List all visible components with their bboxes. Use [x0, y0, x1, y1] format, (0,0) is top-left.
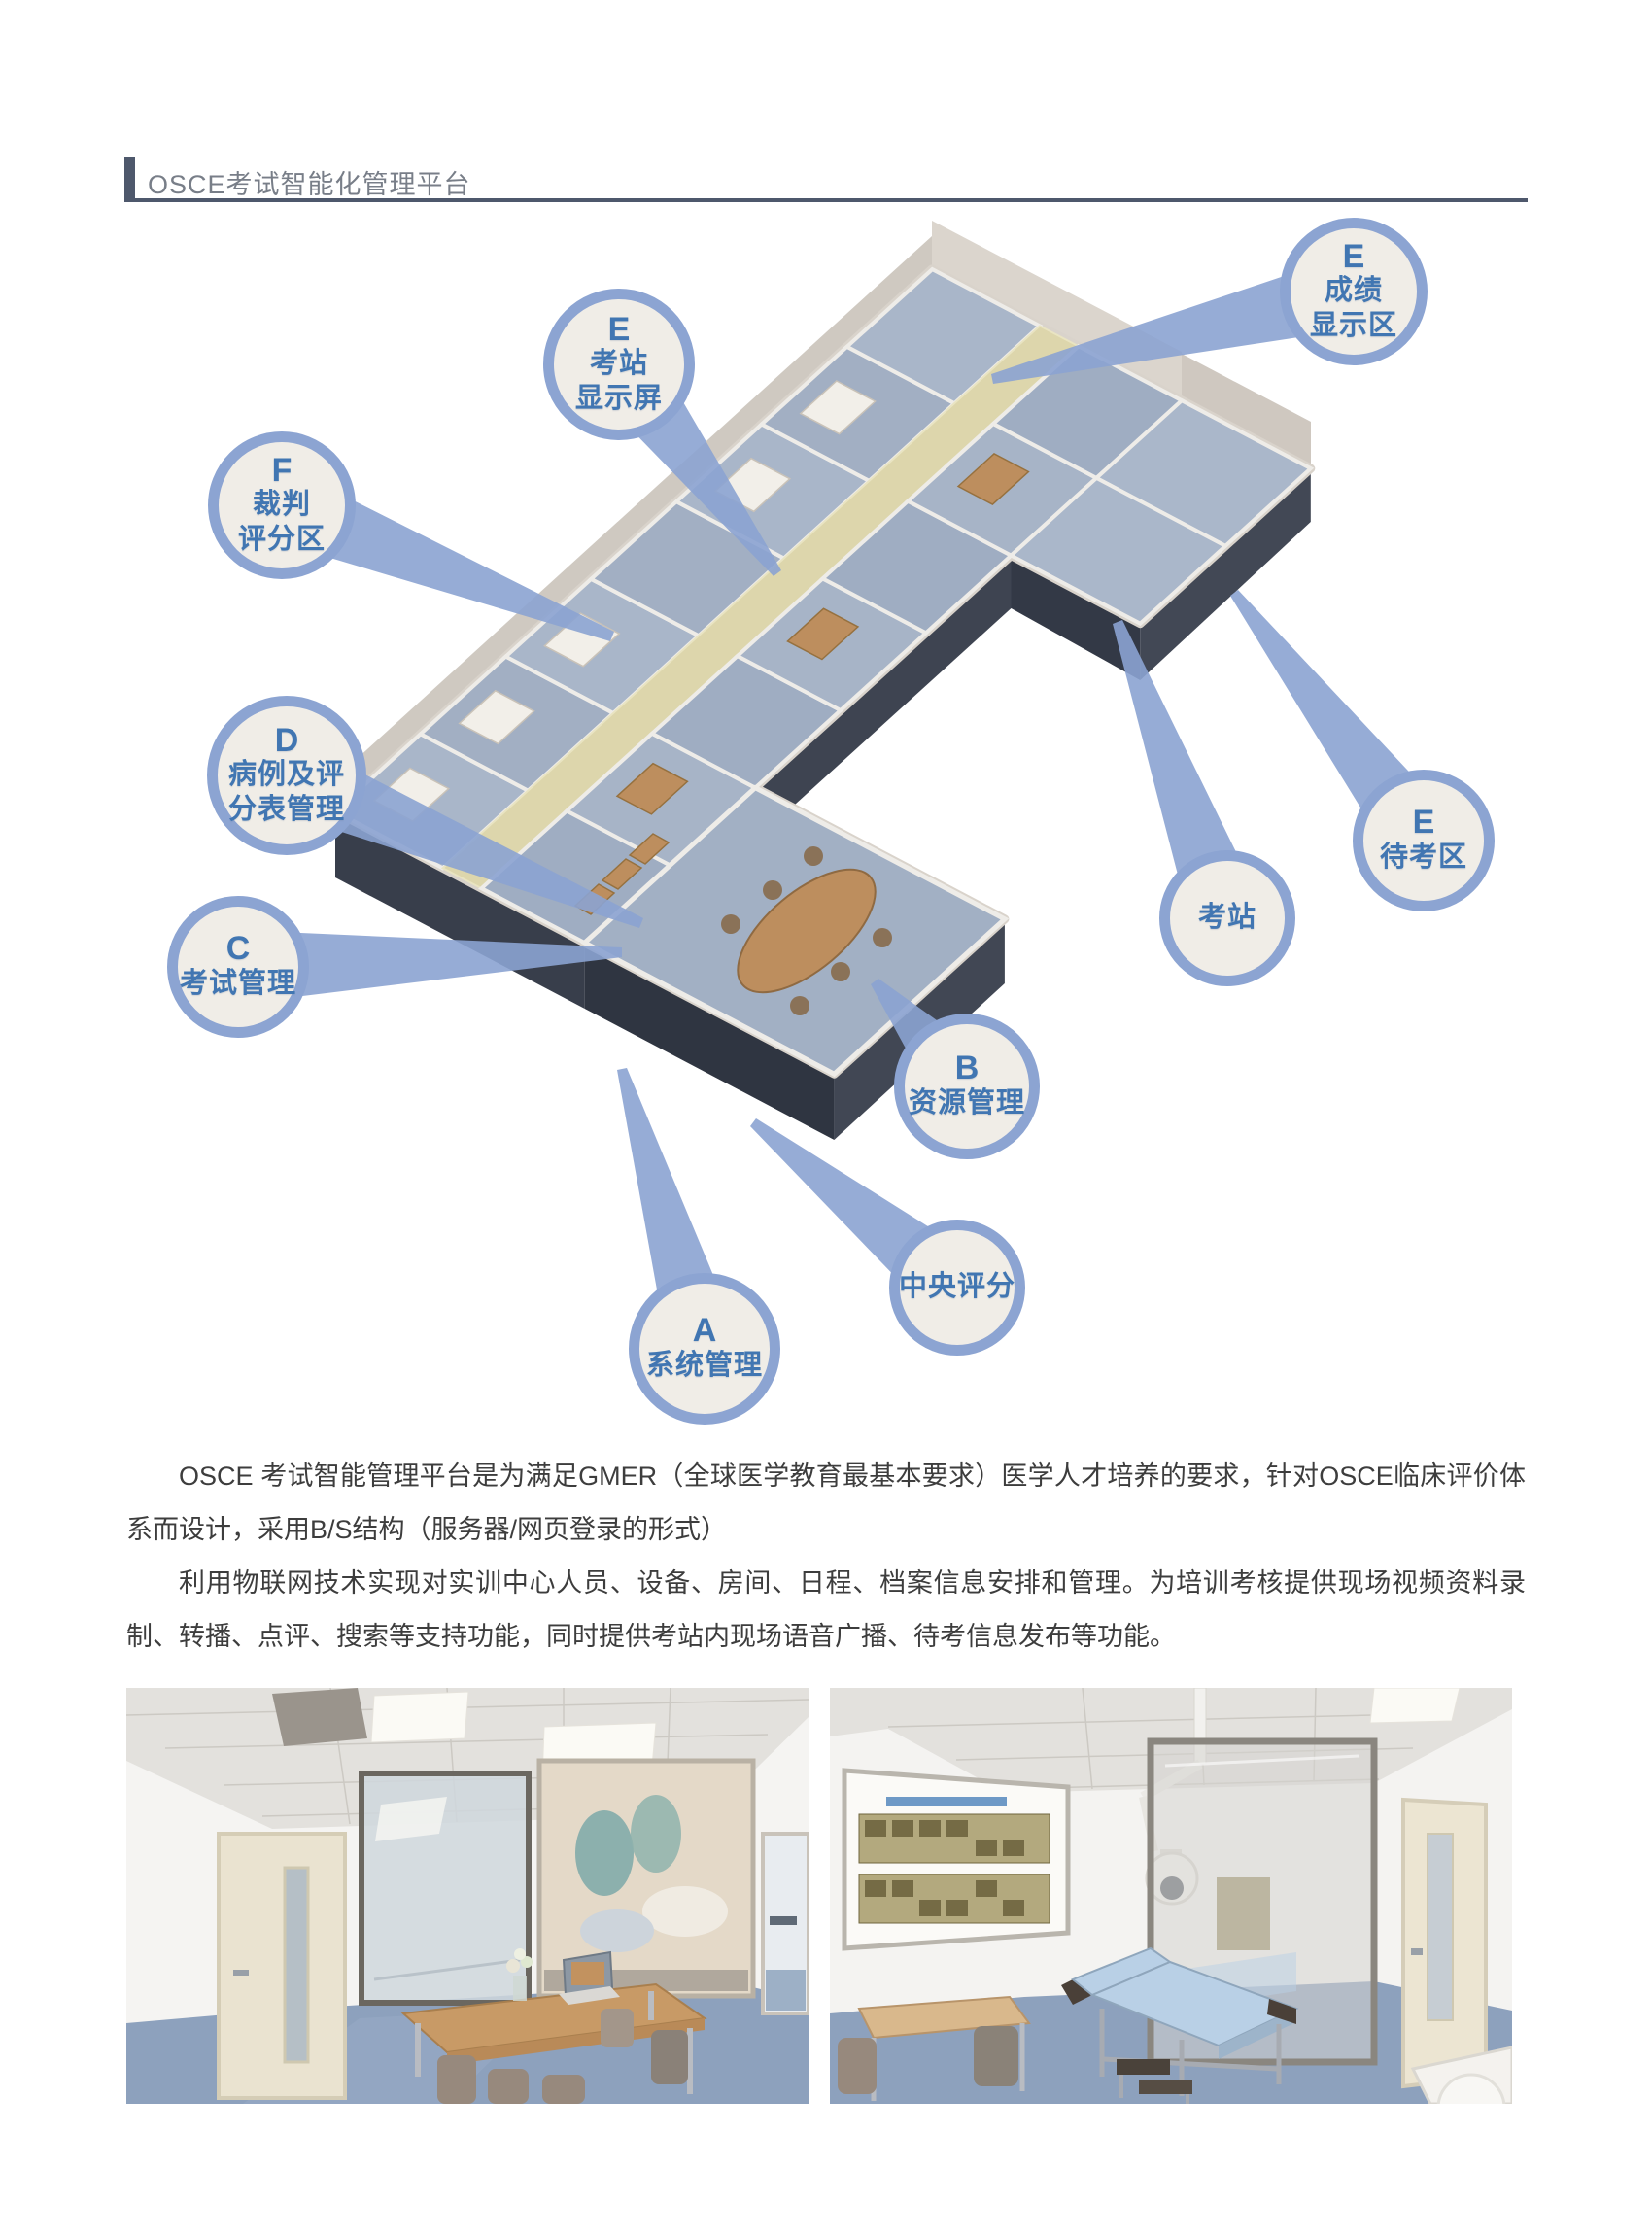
callout-label-line: 考站	[1198, 901, 1256, 935]
door-handle	[1411, 1948, 1423, 1955]
callout-letter: B	[955, 1051, 980, 1086]
callout-label-line: 显示区	[1310, 309, 1397, 343]
light-panel	[371, 1692, 468, 1742]
light-panel	[1370, 1688, 1460, 1723]
callout-e-waiting-area: E 待考区	[1353, 770, 1495, 911]
intro-paragraph-1: OSCE 考试智能管理平台是为满足GMER（全球医学教育最基本要求）医学人才培养…	[126, 1450, 1526, 1557]
callout-label-line: 病例及评	[228, 758, 345, 792]
callout-exam-station: 考站	[1159, 850, 1295, 986]
callout-letter: F	[272, 454, 293, 489]
callout-a-system-mgmt: A 系统管理	[629, 1273, 780, 1425]
callout-label-line: 考站	[590, 347, 648, 381]
glass-partition	[361, 1773, 529, 2003]
brochure-page: OSCE考试智能化管理平台	[0, 0, 1652, 2235]
callout-label-line: 中央评分	[899, 1270, 1015, 1304]
building	[335, 221, 1311, 1140]
callout-label-line: 系统管理	[646, 1349, 763, 1383]
callout-letter: E	[608, 313, 631, 348]
callout-label-line: 显示屏	[575, 382, 663, 416]
callout-letter: C	[226, 932, 251, 967]
callout-letter: E	[1343, 240, 1365, 275]
callout-label-line: 评分区	[238, 523, 326, 557]
door	[1403, 1800, 1486, 2086]
poster-title	[886, 1797, 1007, 1806]
door-handle	[233, 1970, 249, 1976]
callout-central-scoring: 中央评分	[889, 1220, 1025, 1356]
callout-label-line: 成绩	[1325, 274, 1383, 308]
callout-letter: D	[275, 724, 299, 759]
callout-e-score-display: E 成绩 显示区	[1280, 218, 1428, 365]
photo-exam-station-room	[830, 1688, 1512, 2104]
callout-label-line: 裁判	[253, 488, 311, 522]
laptop	[559, 1952, 620, 2005]
intro-paragraph-2: 利用物联网技术实现对实训中心人员、设备、房间、日程、档案信息安排和管理。为培训考…	[126, 1557, 1526, 1664]
photo-review-room	[126, 1688, 809, 2104]
callout-d-case-score-mgmt: D 病例及评 分表管理	[207, 696, 366, 855]
floorplan-poster	[844, 1771, 1068, 1948]
ceiling-speaker	[272, 1688, 367, 1746]
callout-b-resource-mgmt: B 资源管理	[894, 1014, 1040, 1159]
laptop-through-window	[770, 1916, 797, 1925]
callout-label-line: 考试管理	[180, 967, 296, 1001]
chair	[838, 2038, 877, 2094]
callout-letter: A	[693, 1314, 717, 1349]
callout-label-line: 分表管理	[228, 793, 345, 827]
intro-text: OSCE 考试智能管理平台是为满足GMER（全球医学教育最基本要求）医学人才培养…	[126, 1450, 1526, 1664]
callout-c-exam-mgmt: C 考试管理	[167, 896, 309, 1038]
door-glass	[285, 1868, 308, 2062]
door	[219, 1834, 345, 2098]
callout-f-judge-scoring: F 裁判 评分区	[208, 431, 356, 579]
chair	[974, 2026, 1018, 2086]
callout-label-line: 资源管理	[909, 1086, 1025, 1120]
door-glass	[1428, 1834, 1453, 2020]
observation-window	[763, 1834, 809, 2013]
callout-letter: E	[1413, 806, 1435, 841]
callout-label-line: 待考区	[1380, 841, 1467, 875]
callout-e-station-screen: E 考站 显示屏	[543, 289, 695, 440]
